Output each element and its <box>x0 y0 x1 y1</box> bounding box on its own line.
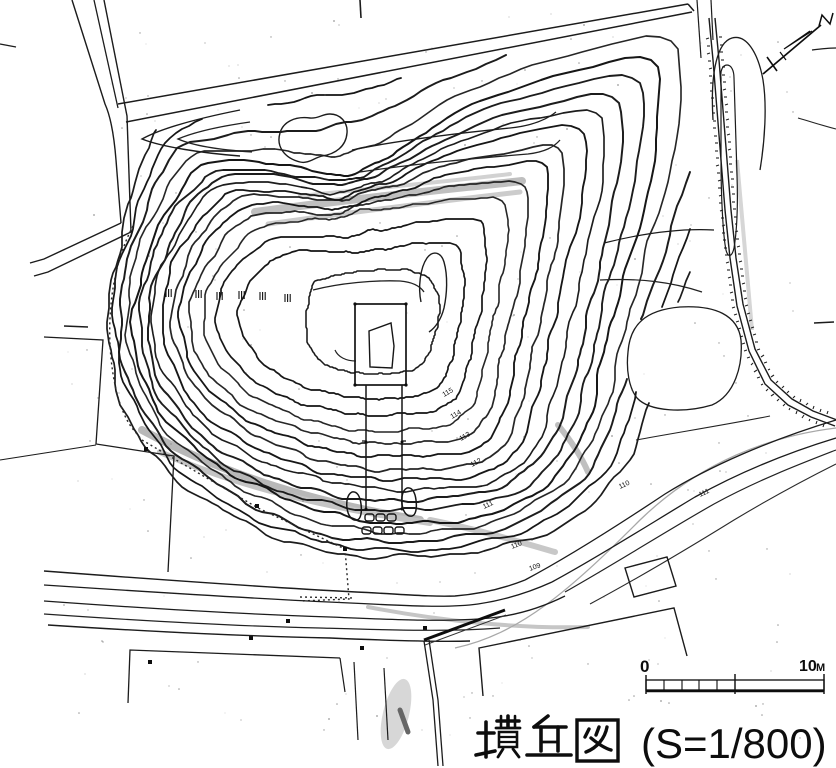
svg-text:10: 10 <box>799 658 817 675</box>
svg-text:(S=1/800): (S=1/800) <box>641 720 827 767</box>
svg-text:M: M <box>816 662 825 674</box>
svg-text:0: 0 <box>640 657 649 676</box>
